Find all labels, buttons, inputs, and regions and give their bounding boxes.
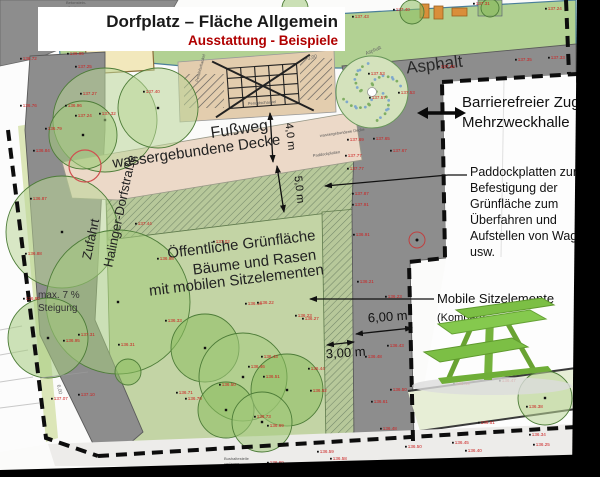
elevation-value: 136.71 (179, 390, 193, 395)
elevation-marker (51, 398, 53, 400)
elevation-value: 137.31 (476, 1, 490, 6)
elevation-value: 137.25 (78, 64, 92, 69)
elevation-marker (380, 428, 382, 430)
elevation-marker (219, 384, 221, 386)
elevation-marker (245, 303, 247, 305)
elevation-value: 137.43 (355, 14, 369, 19)
site-plan-svg: Asphalt Asphalt Fußweg wassergebundene D… (0, 0, 600, 477)
elevation-marker (352, 193, 354, 195)
blossom-dot (357, 69, 360, 72)
blossom-dot (355, 73, 358, 76)
blossom-dot (367, 62, 370, 65)
blossom-dot (379, 116, 382, 119)
elevation-value: 137.67 (393, 148, 407, 153)
dim-strip-width: 6,00 m (367, 308, 408, 326)
blossom-dot (395, 80, 398, 83)
elevation-value: 136.70 (188, 396, 202, 401)
tree-trunk-dot (261, 421, 263, 423)
blossom-dot (350, 104, 353, 107)
elevation-value: 136.59 (320, 449, 334, 454)
blossom-dot (387, 99, 390, 102)
flowering-tree (336, 56, 408, 128)
blossom-dot (342, 98, 345, 101)
elevation-value: 137.42 (441, 64, 455, 69)
elevation-value: 136.91 (356, 232, 370, 237)
elevation-marker (371, 401, 373, 403)
blossom-dot (391, 76, 394, 79)
blossom-dot (387, 108, 390, 111)
elevation-value: 136.31 (121, 342, 135, 347)
elevation-marker (345, 155, 347, 157)
elevation-marker (529, 434, 531, 436)
blossom-dot (361, 65, 364, 68)
blossom-dot (353, 78, 356, 81)
elevation-marker (80, 93, 82, 95)
elevation-value: 136.27 (305, 316, 319, 321)
barrier-line-2: Mehrzweckhalle (462, 114, 570, 131)
elevation-marker (23, 298, 25, 300)
paddock-line: Paddockplatten zur (470, 165, 577, 179)
elevation-marker (353, 234, 355, 236)
elevation-marker (75, 115, 77, 117)
elevation-marker (118, 344, 120, 346)
paddock-line: Grünfläche zum (470, 197, 558, 211)
elevation-marker (75, 66, 77, 68)
elevation-value: 136.43 (390, 343, 404, 348)
elevation-value: 136.72 (23, 56, 37, 61)
tree-trunk-dot (286, 389, 288, 391)
elevation-value: 136.23 (388, 294, 402, 299)
elevation-marker (352, 16, 354, 18)
elevation-value: 137.32 (102, 111, 116, 116)
elevation-value: 137.87 (355, 191, 369, 196)
elevation-value: 136.21 (360, 279, 374, 284)
elevation-marker (390, 150, 392, 152)
blossom-dot (376, 119, 379, 122)
elevation-value: 136.90 (26, 296, 40, 301)
elevation-value: 137.53 (371, 71, 385, 76)
elevation-marker (545, 8, 547, 10)
elevation-marker (478, 422, 480, 424)
elevation-value: 136.73 (257, 414, 271, 419)
elevation-value: 137.69 (350, 137, 364, 142)
elevation-marker (185, 398, 187, 400)
elevation-marker (176, 392, 178, 394)
elevation-value: 137.53 (401, 90, 415, 95)
elevation-value: 137.24 (548, 6, 562, 11)
elevation-value: 136.52 (313, 388, 327, 393)
elevation-marker (405, 446, 407, 448)
blossom-dot (359, 106, 362, 109)
tree-trunk-dot (544, 397, 546, 399)
elevation-marker (473, 3, 475, 5)
elevation-value: 137.02 (216, 239, 230, 244)
dim-paddock-width: 3,00 m (325, 344, 366, 362)
elevation-value: 136.50 (393, 387, 407, 392)
elevation-marker (393, 9, 395, 11)
elevation-value: 137.65 (376, 136, 390, 141)
elevation-value: 137.10 (81, 392, 95, 397)
tree-trunk-dot (61, 231, 63, 233)
elevation-value: 136.98 (160, 256, 174, 261)
elevation-value: 136.45 (455, 440, 469, 445)
elevation-value: 136.48 (368, 354, 382, 359)
elevation-value: 136.95 (66, 338, 80, 343)
elevation-value: 136.50 (408, 444, 422, 449)
elevation-marker (165, 320, 167, 322)
paddock-line: usw. (470, 245, 495, 259)
elevation-value: 137.57 (372, 95, 386, 100)
elevation-marker (267, 425, 269, 427)
elevation-marker (213, 241, 215, 243)
marker-dot (416, 239, 419, 242)
elevation-marker (515, 59, 517, 61)
blossom-dot (355, 82, 358, 85)
elevation-marker (533, 444, 535, 446)
elevation-value: 137.77 (348, 153, 362, 158)
elevation-marker (398, 92, 400, 94)
blossom-dot (387, 104, 390, 107)
elevation-marker (330, 458, 332, 460)
elevation-value: 136.44 (311, 366, 325, 371)
elevation-value: 136.43 (264, 354, 278, 359)
elevation-marker (385, 296, 387, 298)
elevation-value: 136.95 (70, 51, 84, 56)
elevation-marker (295, 315, 297, 317)
elevation-value: 137.44 (138, 221, 152, 226)
blossom-dot (356, 86, 359, 89)
elevation-value: 136.58 (333, 456, 347, 461)
elevation-value: 136.48 (383, 426, 397, 431)
elevation-value: 137.91 (355, 202, 369, 207)
slope-label-2: Steigung (38, 303, 77, 314)
elevation-value: 137.07 (54, 396, 68, 401)
tree-trunk-dot (117, 301, 119, 303)
elevation-marker (387, 345, 389, 347)
tree-trunk-dot (82, 134, 84, 136)
elevation-marker (261, 356, 263, 358)
elevation-value: 137.77 (350, 166, 364, 171)
elevation-value: 136.46 (251, 364, 265, 369)
blossom-dot (359, 90, 362, 93)
elevation-marker (352, 204, 354, 206)
elevation-marker (368, 73, 370, 75)
elevation-marker (347, 139, 349, 141)
blossom-dot (374, 78, 377, 81)
elevation-value: 136.96 (68, 103, 82, 108)
elevation-value: 136.87 (33, 196, 47, 201)
elevation-value: 137.33 (551, 55, 565, 60)
elevation-value: 136.61 (374, 399, 388, 404)
elevation-marker (20, 105, 22, 107)
tree (115, 359, 141, 385)
elevation-marker (20, 58, 22, 60)
elevation-marker (310, 390, 312, 392)
elevation-marker (30, 198, 32, 200)
elevation-marker (263, 376, 265, 378)
elevation-marker (390, 389, 392, 391)
blossom-dot (384, 112, 387, 115)
elevation-marker (526, 406, 528, 408)
tree-trunk-dot (204, 347, 206, 349)
tree-trunk-dot (242, 376, 244, 378)
elevation-value: 137.40 (396, 7, 410, 12)
elevation-marker (78, 334, 80, 336)
elevation-value: 136.79 (48, 126, 62, 131)
tree-trunk-dot (47, 337, 49, 339)
elevation-value: 137.24 (78, 113, 92, 118)
elevation-value: 136.40 (468, 448, 482, 453)
blossom-dot (399, 85, 402, 88)
elevation-marker (78, 394, 80, 396)
elevation-marker (452, 442, 454, 444)
elevation-marker (25, 253, 27, 255)
paddock-line: Befestigung der (470, 181, 558, 195)
elevation-marker (308, 368, 310, 370)
tree (400, 0, 424, 24)
blossom-dot (371, 82, 374, 85)
elevation-marker (63, 340, 65, 342)
tree-trunk-dot (157, 107, 159, 109)
elevation-value: 136.38 (529, 404, 543, 409)
elevation-marker (347, 168, 349, 170)
elevation-marker (438, 66, 440, 68)
elevation-marker (548, 57, 550, 59)
paddock-line: Aufstellen von Wagen (470, 229, 591, 243)
elevation-marker (135, 223, 137, 225)
blossom-dot (387, 75, 390, 78)
elevation-marker (254, 416, 256, 418)
elevation-marker (45, 128, 47, 130)
elevation-marker (365, 356, 367, 358)
elevation-marker (143, 91, 145, 93)
elevation-value: 136.51 (481, 420, 495, 425)
site-plan-screenshot: Asphalt Asphalt Fußweg wassergebundene D… (0, 0, 600, 477)
elevation-value: 136.69 (270, 423, 284, 428)
blossom-dot (345, 100, 348, 103)
elevation-value: 137.35 (518, 57, 532, 62)
plan-subtitle: Ausstattung - Beispiele (188, 33, 339, 48)
elevation-value: 136.50 (222, 382, 236, 387)
plan-title: Dorfplatz – Fläche Allgemein (106, 12, 338, 31)
elevation-marker (248, 366, 250, 368)
elevation-value: 136.76 (23, 103, 37, 108)
elevation-value: 136.84 (36, 148, 50, 153)
elevation-marker (373, 138, 375, 140)
blossom-dot (368, 104, 371, 107)
elevation-marker (67, 53, 69, 55)
tree-trunk-dot (225, 409, 227, 411)
slope-label-1: max. 7 % (38, 290, 80, 301)
elevation-value: 136.25 (536, 442, 550, 447)
elevation-value: 137.27 (83, 91, 97, 96)
blossom-dot (355, 107, 358, 110)
elevation-marker (99, 113, 101, 115)
blossom-dot (364, 106, 367, 109)
elevation-marker (157, 258, 159, 260)
blossom-dot (378, 76, 381, 79)
elevation-marker (465, 450, 467, 452)
elevation-value: 136.33 (168, 318, 182, 323)
elevation-value: 136.88 (28, 251, 42, 256)
elevation-marker (257, 302, 259, 304)
elevation-marker (302, 318, 304, 320)
elevation-marker (369, 97, 371, 99)
elevation-value: 136.22 (260, 300, 274, 305)
paddock-line: Überfahren und (470, 213, 557, 227)
elevation-value: 137.40 (146, 89, 160, 94)
elevation-value: 136.34 (532, 432, 546, 437)
elevation-value: 136.51 (266, 374, 280, 379)
elevation-marker (33, 150, 35, 152)
play-hatch-right (300, 58, 332, 100)
title-box: Dorfplatz – Fläche Allgemein Ausstattung… (38, 7, 345, 51)
elevation-value: 137.31 (81, 332, 95, 337)
elevation-marker (357, 281, 359, 283)
elevation-marker (65, 105, 67, 107)
elevation-marker (317, 451, 319, 453)
